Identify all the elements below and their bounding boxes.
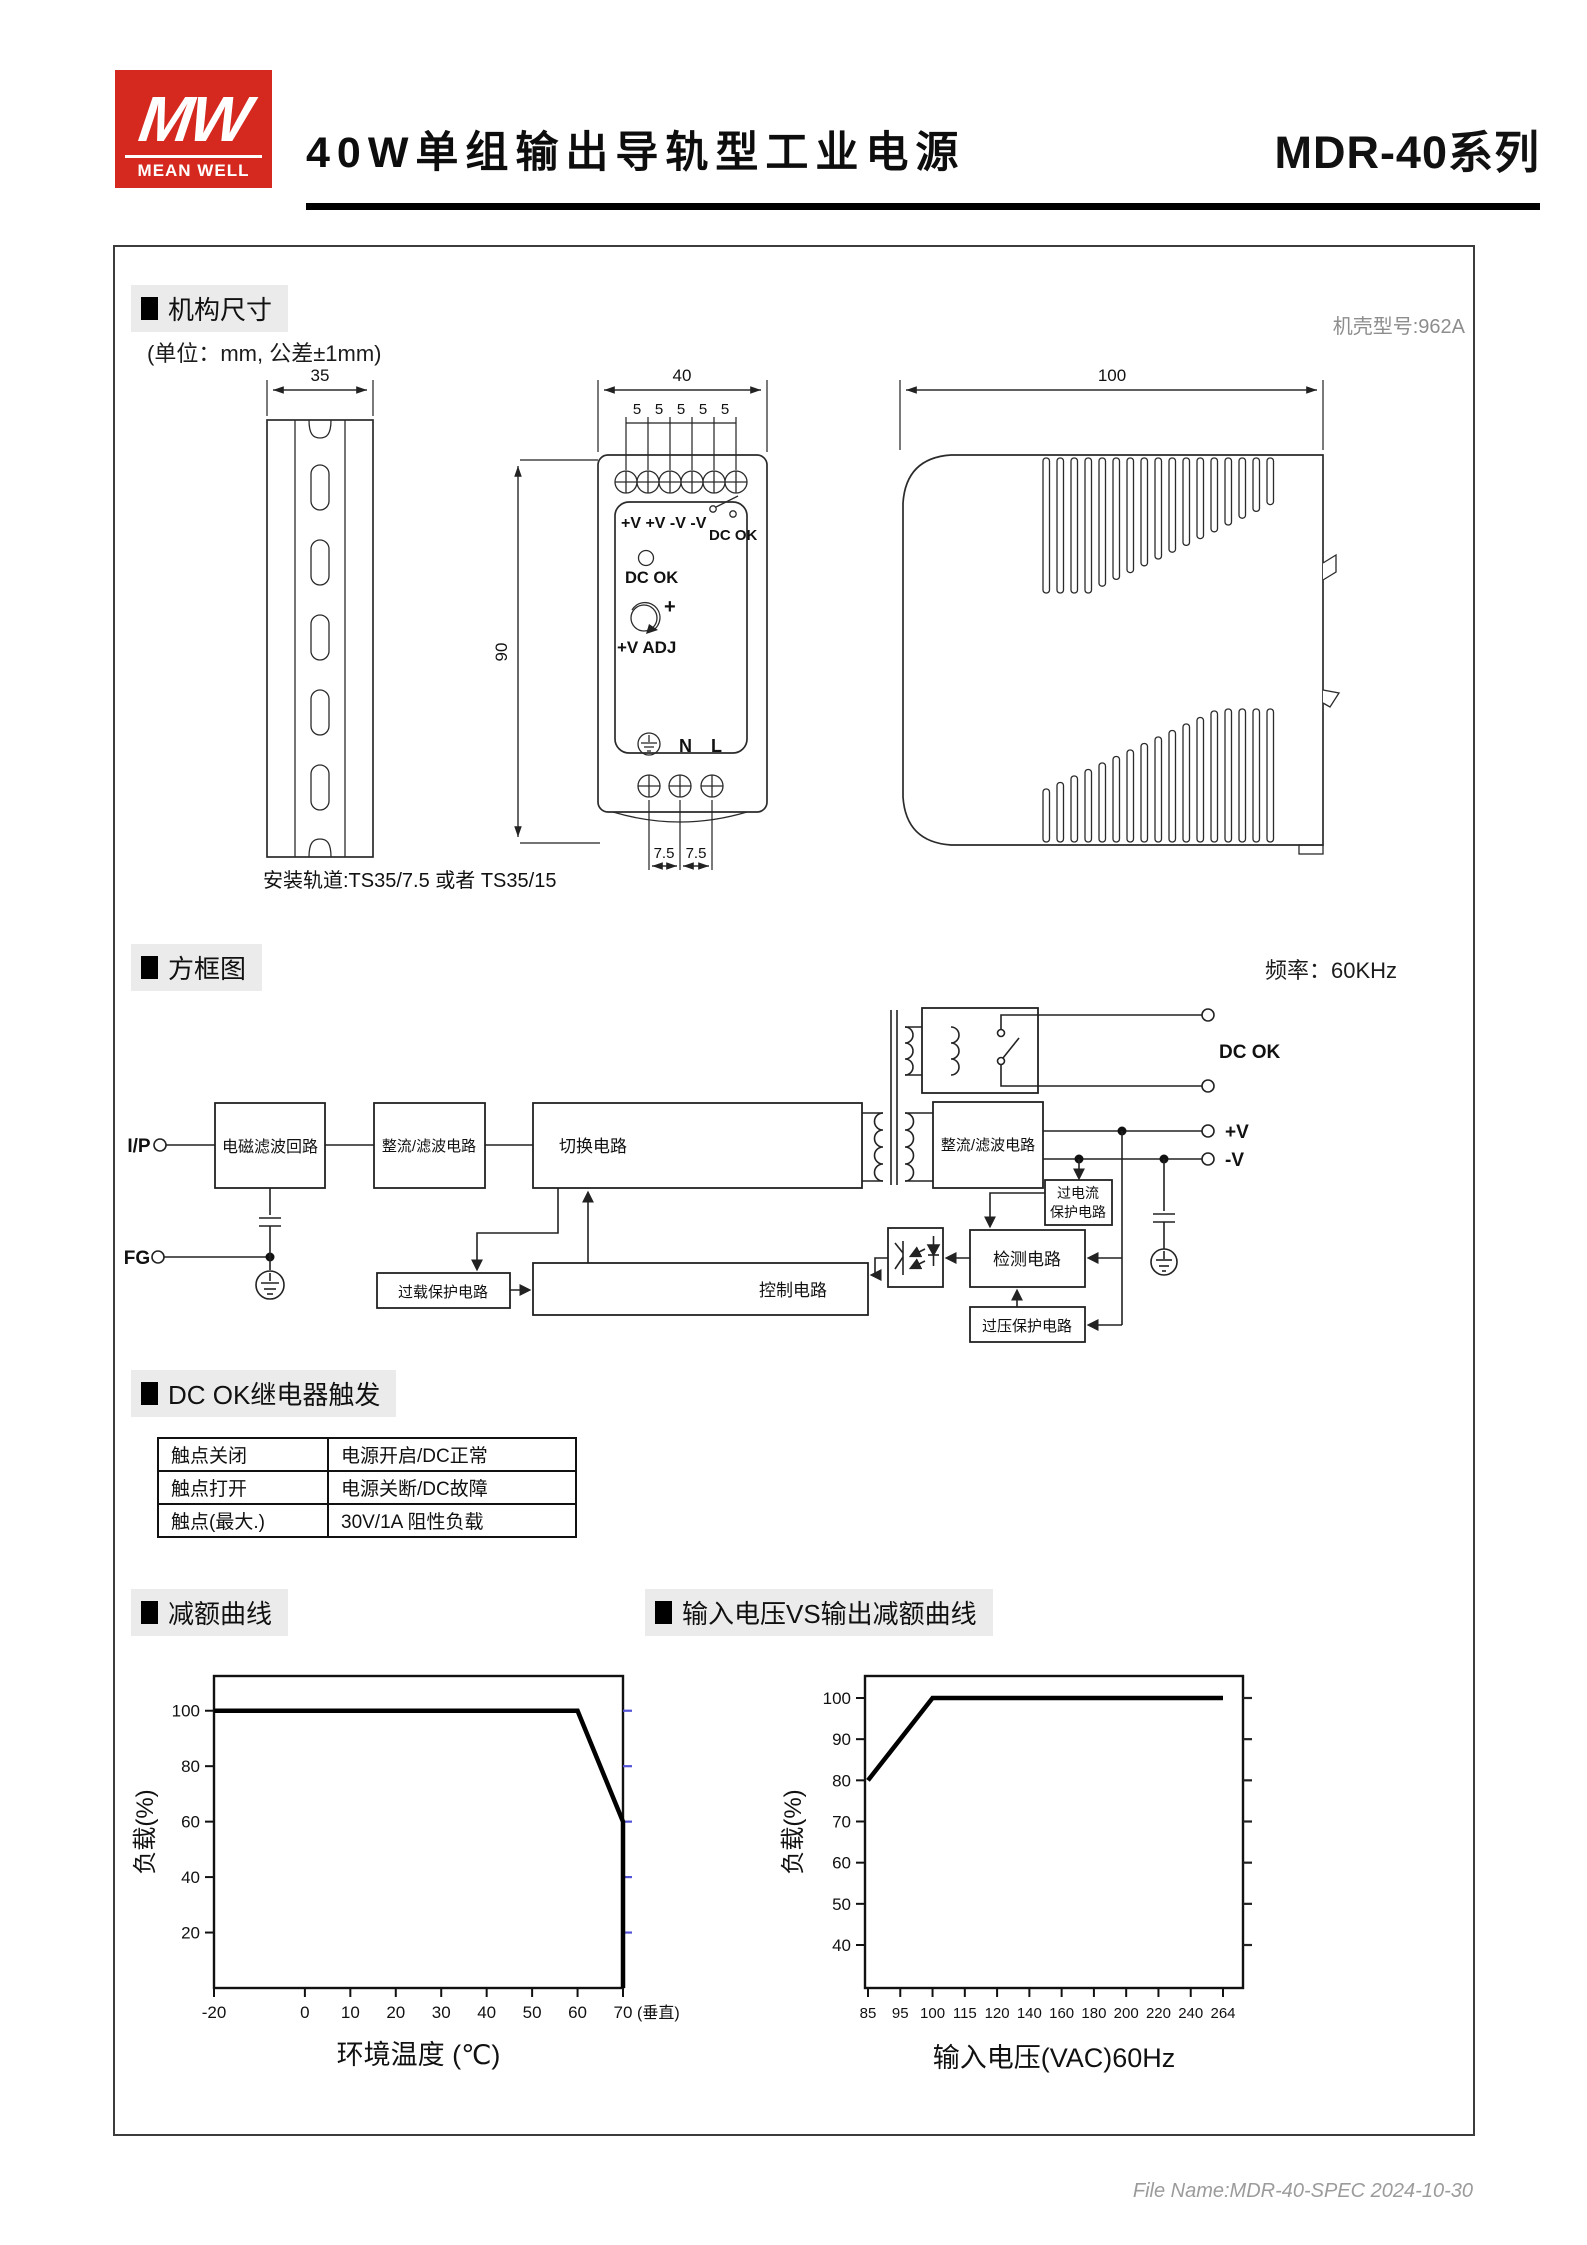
x-tick-label: 40 xyxy=(477,2003,496,2022)
section-marker-icon xyxy=(141,956,158,979)
x-tick-label: 240 xyxy=(1178,2005,1203,2022)
block-switching-label: 切换电路 xyxy=(559,1137,627,1156)
x-axis-label: 输入电压(VAC)60Hz xyxy=(933,2043,1176,2073)
vent-slot xyxy=(1155,458,1162,559)
section-relay-header: DC OK继电器触发 xyxy=(131,1370,396,1417)
vent-slot xyxy=(1169,731,1176,843)
section-mechanical-title: 机构尺寸 xyxy=(168,290,272,327)
x-tick-label: 70 xyxy=(614,2003,633,2022)
terminal-screws-bottom xyxy=(638,775,723,797)
relay-contact-icon xyxy=(710,496,738,517)
terminal-dcok-a-icon xyxy=(1202,1009,1214,1021)
terminal-fg-icon xyxy=(152,1251,164,1263)
vent-slot xyxy=(1197,458,1204,539)
vent-slot xyxy=(1071,458,1078,593)
meanwell-logo: MW MEAN WELL xyxy=(115,70,272,188)
panel-n-label: N xyxy=(679,736,692,756)
x-tick-label: 0 xyxy=(300,2003,309,2022)
panel-vadj-label: +V ADJ xyxy=(617,638,676,657)
x-axis-suffix: (垂直) xyxy=(637,2004,680,2022)
section-block-header: 方框图 xyxy=(131,944,262,991)
terminal-screws-top xyxy=(615,471,747,493)
series-title: MDR-40系列 xyxy=(1140,116,1540,181)
adjust-plus-label: + xyxy=(664,596,676,618)
section-marker-icon xyxy=(141,297,158,320)
vent-slot xyxy=(1267,709,1274,842)
y-axis-label: 负载(%) xyxy=(132,1789,159,1874)
table-row: 触点关闭 电源开启/DC正常 xyxy=(158,1438,576,1471)
y-tick-label: 90 xyxy=(832,1730,851,1749)
x-tick-label: 50 xyxy=(523,2003,542,2022)
dim-pitch: 5 xyxy=(699,401,707,418)
input-voltage-derating-chart: 4050607080901008595100115120140160180200… xyxy=(753,1660,1393,2130)
vent-slot xyxy=(1267,458,1274,505)
side-view-drawing: 100 xyxy=(900,366,1339,854)
block-detection-label: 检测电路 xyxy=(993,1250,1061,1269)
vent-slot xyxy=(1043,458,1050,593)
voltage-adjust-knob-icon xyxy=(631,603,660,634)
block-emi-filter-label: 电磁滤波回路 xyxy=(222,1138,318,1156)
vent-slot xyxy=(1183,458,1190,545)
y-axis-label: 负载(%) xyxy=(780,1789,807,1874)
vent-slot xyxy=(1183,724,1190,842)
x-axis-label: 环境温度 (℃) xyxy=(337,2040,501,2070)
block-ocp-label2: 保护电路 xyxy=(1050,1204,1106,1220)
front-view-drawing: 40 5 5 5 5 5 xyxy=(492,366,767,870)
x-tick-label: 200 xyxy=(1114,2005,1139,2022)
terminal-fg-label: FG xyxy=(124,1248,150,1269)
vent-slot xyxy=(1155,737,1162,842)
vent-slot xyxy=(1253,458,1260,511)
y-tick-label: 70 xyxy=(832,1813,851,1832)
file-info: File Name:MDR-40-SPEC 2024-10-30 xyxy=(1000,2180,1473,2203)
vent-slot xyxy=(1043,789,1050,842)
vent-slot xyxy=(1239,709,1246,842)
ventilation-slots xyxy=(1043,458,1274,842)
y-tick-label: 80 xyxy=(832,1771,851,1790)
panel-dcok-contact-label: DC OK xyxy=(709,527,758,544)
terminal-dcok-label: DC OK xyxy=(1219,1042,1281,1063)
section-derating-header: 减额曲线 xyxy=(131,1589,288,1636)
y-tick-label: 50 xyxy=(832,1895,851,1914)
terminal-ip-label: I/P xyxy=(127,1136,151,1157)
block-overload-label: 过载保护电路 xyxy=(398,1284,488,1301)
header-rule xyxy=(306,203,1540,210)
terminal-vminus-label: -V xyxy=(1225,1150,1244,1171)
dim-depth: 100 xyxy=(1098,366,1126,385)
x-tick-label: 85 xyxy=(860,2005,877,2022)
vent-slot xyxy=(1141,744,1148,843)
vent-slot xyxy=(1211,458,1218,532)
vent-slot xyxy=(1225,709,1232,842)
output-capacitor-icon xyxy=(1153,1159,1175,1249)
x-tick-label: 10 xyxy=(341,2003,360,2022)
terminal-vminus-icon xyxy=(1202,1153,1214,1165)
block-optocoupler xyxy=(888,1228,943,1287)
x-tick-label: 115 xyxy=(953,2005,977,2022)
section-relay-title: DC OK继电器触发 xyxy=(168,1375,380,1412)
rail-type-note: 安装轨道:TS35/7.5 或者 TS35/15 xyxy=(263,869,556,892)
vent-slot xyxy=(1211,711,1218,842)
section-input-derating-header: 输入电压VS输出减额曲线 xyxy=(645,1589,993,1636)
dim-rail-width: 35 xyxy=(311,366,330,385)
vent-slot xyxy=(1127,458,1134,573)
y-tick-label: 100 xyxy=(172,1702,200,1721)
logo-mw-text: MW xyxy=(135,83,253,155)
y-tick-label: 100 xyxy=(823,1689,851,1708)
block-ocp-label1: 过电流 xyxy=(1057,1185,1099,1201)
dim-pitch: 5 xyxy=(677,401,685,418)
relay-row-label: 触点(最大.) xyxy=(158,1504,328,1537)
x-tick-label: 140 xyxy=(1017,2005,1042,2022)
logo-divider xyxy=(125,155,262,158)
dim-pitch: 5 xyxy=(655,401,663,418)
ground-icon xyxy=(256,1271,284,1299)
vent-slot xyxy=(1085,458,1092,593)
page-title: 40W单组输出导轨型工业电源 xyxy=(306,118,965,180)
terminal-ip-icon xyxy=(154,1139,166,1151)
block-rectifier2-label: 整流/滤波电路 xyxy=(941,1137,1035,1154)
din-rail-drawing: 35 安装轨道:TS35/7.5 或者 TS35/15 xyxy=(263,366,556,892)
vent-slot xyxy=(1113,458,1120,579)
section-marker-icon xyxy=(655,1601,672,1624)
terminal-dcok-b-icon xyxy=(1202,1080,1214,1092)
frequency-note: 频率：60KHz xyxy=(1265,953,1397,985)
x-tick-label: 30 xyxy=(432,2003,451,2022)
vent-slot xyxy=(1225,458,1232,525)
terminal-vplus-label: +V xyxy=(1225,1122,1249,1143)
vent-slot xyxy=(1057,783,1064,843)
block-rectifier1-label: 整流/滤波电路 xyxy=(382,1138,476,1155)
section-input-derating-title: 输入电压VS输出减额曲线 xyxy=(682,1594,977,1631)
axis-frame xyxy=(865,1676,1243,1988)
x-tick-label: 264 xyxy=(1210,2005,1235,2022)
logo-brand-text: MEAN WELL xyxy=(138,161,250,181)
vent-slot xyxy=(1085,770,1092,843)
x-tick-label: 220 xyxy=(1146,2005,1171,2022)
din-clip-icon xyxy=(1299,555,1339,854)
relay-row-label: 触点关闭 xyxy=(158,1438,328,1471)
y-tick-label: 80 xyxy=(181,1757,200,1776)
vent-slot xyxy=(1169,458,1176,552)
series-line xyxy=(214,1711,623,1988)
block-ovp-label: 过压保护电路 xyxy=(982,1318,1072,1335)
vent-slot xyxy=(1071,776,1078,842)
vent-slot xyxy=(1057,458,1064,593)
panel-dcok-led-label: DC OK xyxy=(625,569,678,587)
relay-row-label: 触点打开 xyxy=(158,1471,328,1504)
vent-slot xyxy=(1099,458,1106,586)
section-mechanical-header: 机构尺寸 xyxy=(131,285,288,332)
panel-terminal-labels: +V +V -V -V xyxy=(621,515,707,532)
vent-slot xyxy=(1113,757,1120,843)
vent-slot xyxy=(1197,718,1204,843)
x-tick-label: 20 xyxy=(386,2003,405,2022)
relay-row-value: 30V/1A 阻性负载 xyxy=(328,1504,576,1537)
section-derating-title: 减额曲线 xyxy=(168,1594,272,1631)
dim-term-pitch: 7.5 xyxy=(654,845,675,862)
table-row: 触点(最大.) 30V/1A 阻性负载 xyxy=(158,1504,576,1537)
mechanical-drawing: 35 安装轨道:TS35/7.5 或者 TS35/15 40 5 5 xyxy=(113,360,1473,920)
datasheet-page: MW MEAN WELL 40W单组输出导轨型工业电源 MDR-40系列 机构尺… xyxy=(0,0,1587,2245)
case-type-note: 机壳型号:962A xyxy=(1180,310,1465,339)
ground-icon xyxy=(638,733,660,755)
dim-pitch: 5 xyxy=(633,401,641,418)
dim-term-pitch: 7.5 xyxy=(686,845,707,862)
vent-slot xyxy=(1253,709,1260,842)
x-tick-label: 95 xyxy=(892,2005,909,2022)
y-tick-label: 20 xyxy=(181,1924,200,1943)
block-diagram: I/P 电磁滤波回路 整流/滤波电路 切换电路 xyxy=(113,985,1473,1405)
terminal-vplus-icon xyxy=(1202,1125,1214,1137)
vent-slot xyxy=(1239,458,1246,518)
dim-unit-height: 90 xyxy=(492,643,511,662)
dcok-led-icon xyxy=(639,551,654,566)
y-tick-label: 60 xyxy=(181,1813,200,1832)
x-tick-label: -20 xyxy=(202,2003,227,2022)
section-block-title: 方框图 xyxy=(168,949,246,986)
x-tick-label: 160 xyxy=(1049,2005,1074,2022)
dim-unit-width: 40 xyxy=(673,366,692,385)
vent-slot xyxy=(1141,458,1148,566)
axis-frame xyxy=(214,1676,623,1988)
vent-slot xyxy=(1099,763,1106,842)
relay-row-value: 电源关断/DC故障 xyxy=(328,1471,576,1504)
x-tick-label: 120 xyxy=(985,2005,1010,2022)
block-dcok-relay xyxy=(922,1008,1038,1093)
series-line xyxy=(868,1698,1223,1780)
table-row: 触点打开 电源关断/DC故障 xyxy=(158,1471,576,1504)
section-marker-icon xyxy=(141,1601,158,1624)
y-tick-label: 40 xyxy=(181,1868,200,1887)
y-tick-label: 40 xyxy=(832,1936,851,1955)
section-marker-icon xyxy=(141,1382,158,1405)
panel-l-label: L xyxy=(711,736,722,756)
dim-pitch: 5 xyxy=(721,401,729,418)
derating-curve-chart: 20406080100-20010203040506070(垂直)负载(%)环境… xyxy=(113,1660,753,2130)
x-tick-label: 180 xyxy=(1081,2005,1106,2022)
relay-table: 触点关闭 电源开启/DC正常 触点打开 电源关断/DC故障 触点(最大.) 30… xyxy=(157,1437,577,1538)
relay-row-value: 电源开启/DC正常 xyxy=(328,1438,576,1471)
ground-icon xyxy=(1151,1249,1177,1275)
vent-slot xyxy=(1127,750,1134,842)
x-tick-label: 60 xyxy=(568,2003,587,2022)
y-tick-label: 60 xyxy=(832,1854,851,1873)
x-tick-label: 100 xyxy=(920,2005,945,2022)
block-control-label: 控制电路 xyxy=(759,1281,827,1300)
